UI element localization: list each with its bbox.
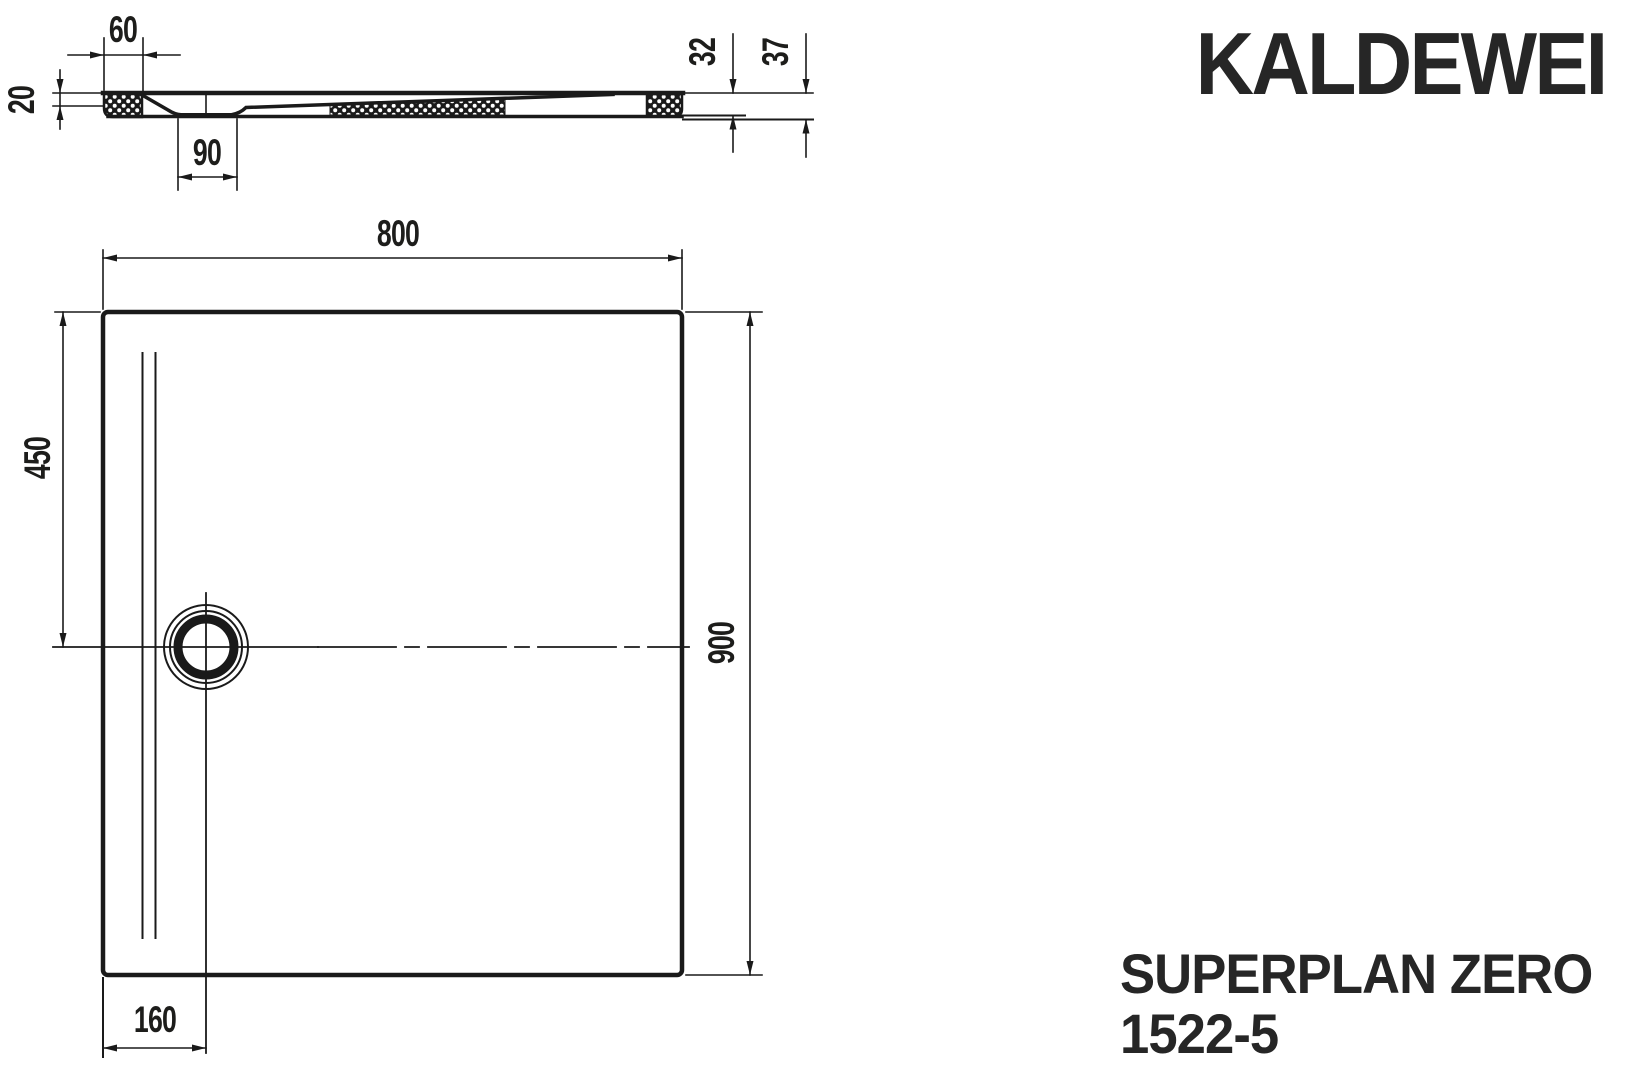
dim-160-label: 160: [134, 999, 176, 1041]
dim-20-label: 20: [1, 86, 43, 114]
dim-900-label: 900: [701, 622, 743, 664]
dimension-arrowheads: [57, 52, 810, 1052]
dim-450-label: 450: [17, 437, 59, 479]
drawing-canvas: [0, 0, 1637, 1080]
technical-drawing-sheet: 60 20 90 32 37 800 450 900 160 KALDEWEI …: [0, 0, 1637, 1080]
plan-view: [53, 250, 762, 1057]
dim-90-label: 90: [193, 132, 221, 174]
product-name: SUPERPLAN ZERO: [1120, 946, 1592, 1002]
dim-60-label: 60: [109, 9, 137, 51]
dim-37-label: 37: [755, 38, 797, 66]
dim-32-label: 32: [682, 38, 724, 66]
dim-800-label: 800: [377, 213, 419, 255]
product-model: 1522-5: [1120, 1006, 1278, 1062]
section-left-rim-block: [104, 93, 142, 117]
section-right-rim-block: [647, 94, 682, 117]
brand-logo: KALDEWEI: [1195, 20, 1605, 108]
plan-tray-outline: [103, 312, 682, 975]
